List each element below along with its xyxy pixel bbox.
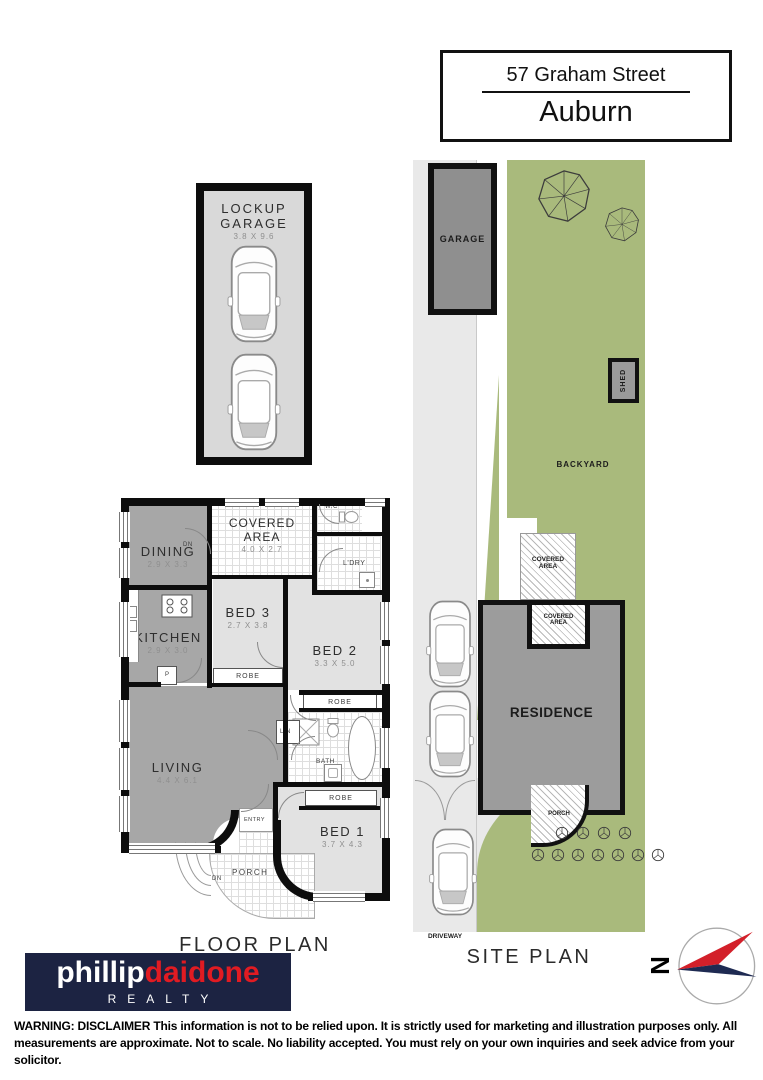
bath-sink	[324, 764, 342, 782]
brand-tagline: REALTY	[97, 992, 220, 1006]
wall	[207, 683, 288, 687]
wall	[382, 498, 390, 900]
driveway-label: DRIVEWAY	[413, 933, 477, 940]
window	[380, 646, 391, 684]
stove-icon	[161, 594, 193, 618]
entry-label: ENTRY	[244, 817, 265, 823]
toilet-icon	[339, 509, 359, 525]
room-bed2: BED 2 3.3 X 5.0	[288, 595, 382, 690]
window	[119, 512, 130, 542]
residence-covered-area: COVERED AREA	[527, 605, 590, 649]
compass: N	[648, 922, 760, 1010]
shrub-icon	[531, 848, 545, 862]
laundry-tub	[359, 572, 375, 588]
window	[365, 496, 385, 507]
address-suburb: Auburn	[539, 96, 633, 129]
site-garage: GARAGE	[428, 163, 497, 315]
porch-dn-label: DN	[212, 876, 222, 882]
lockup-garage-title: LOCKUP GARAGE	[212, 201, 296, 231]
wall	[283, 575, 288, 695]
robe-bed3: ROBE	[213, 668, 283, 684]
address-box: 57 Graham Street Auburn	[440, 50, 732, 142]
living-label: LIVING	[125, 760, 230, 775]
room-bed2-patch	[288, 579, 312, 595]
car-icon	[226, 351, 282, 453]
shrub-icon	[576, 826, 590, 840]
window	[129, 843, 215, 854]
window	[380, 798, 391, 838]
site-garage-label: GARAGE	[440, 234, 486, 244]
shrub-row	[555, 826, 632, 840]
window	[119, 700, 130, 742]
shrub-icon	[555, 826, 569, 840]
address-street: 57 Graham Street	[507, 64, 666, 87]
wall	[273, 782, 390, 787]
car-icon	[425, 598, 475, 690]
window	[119, 548, 130, 578]
bed2-dims: 3.3 X 5.0	[288, 659, 382, 668]
brand-first-name: phillip	[56, 956, 144, 989]
shrub-row	[531, 848, 665, 862]
shrub-icon	[618, 826, 632, 840]
site-covered-area-label: COVERED AREA	[528, 556, 568, 570]
bed2-label: BED 2	[288, 643, 382, 658]
bathtub	[348, 716, 376, 780]
tree-icon	[603, 206, 641, 244]
wall	[312, 590, 390, 595]
window	[380, 728, 391, 768]
wall	[299, 806, 390, 810]
toilet-icon	[325, 718, 341, 738]
residence: COVERED AREA RESIDENCE	[478, 600, 625, 815]
shrub-icon	[551, 848, 565, 862]
brand-name: phillipdaidone	[56, 958, 259, 988]
shrub-icon	[571, 848, 585, 862]
brand-last-name: daidone	[145, 956, 260, 989]
window	[313, 891, 365, 902]
shed: SHED	[608, 358, 639, 403]
lockup-garage-interior: LOCKUP GARAGE 3.8 X 9.6	[204, 191, 304, 457]
porch-upper	[239, 832, 273, 853]
shrub-icon	[631, 848, 645, 862]
window	[265, 496, 299, 507]
residence-covered-area-label: COVERED AREA	[538, 614, 579, 626]
covered-area-label: COVERED AREA	[217, 516, 307, 544]
wall	[121, 585, 212, 590]
site-plan: GARAGE SHED BACKYARD COVERED AREA COVERE…	[413, 160, 645, 942]
room-covered-area: COVERED AREA 4.0 X 2.7	[211, 502, 313, 575]
shrub-icon	[597, 826, 611, 840]
floor-plan: DINING 2.9 X 3.3 COVERED AREA 4.0 X 2.7 …	[113, 490, 397, 935]
pantry-label: P	[165, 672, 170, 678]
shrub-icon	[611, 848, 625, 862]
lockup-garage-dims: 3.8 X 9.6	[204, 232, 304, 241]
disclaimer-text: WARNING: DISCLAIMER This information is …	[14, 1018, 754, 1068]
wall	[312, 532, 390, 536]
linen-closet: LIN	[276, 720, 300, 744]
bed3-label: BED 3	[213, 605, 283, 620]
shed-label: SHED	[620, 368, 627, 393]
window	[119, 748, 130, 790]
address-divider	[482, 91, 690, 93]
porch-label: PORCH	[232, 868, 268, 877]
car-icon	[428, 826, 478, 918]
wall	[273, 782, 278, 834]
shrub-icon	[591, 848, 605, 862]
dining-dn-label: DN	[183, 542, 193, 548]
window	[119, 602, 130, 657]
dining-dims: 2.9 X 3.3	[125, 560, 211, 569]
window	[225, 496, 259, 507]
compass-icon	[670, 922, 760, 1010]
backyard-label: BACKYARD	[533, 460, 633, 469]
site-covered-area: COVERED AREA	[520, 533, 576, 600]
brand-logo: phillipdaidone REALTY	[25, 953, 291, 1011]
wall	[312, 498, 317, 595]
lockup-garage-plan: LOCKUP GARAGE 3.8 X 9.6	[196, 183, 312, 465]
car-icon	[425, 688, 475, 780]
robe-bed1: ROBE	[305, 790, 377, 806]
car-icon	[226, 243, 282, 345]
bed3-dims: 2.7 X 3.8	[213, 621, 283, 630]
wall	[121, 682, 161, 687]
window	[119, 796, 130, 832]
site-plan-caption: SITE PLAN	[413, 946, 645, 969]
lockup-garage-label: LOCKUP GARAGE 3.8 X 9.6	[204, 201, 304, 241]
wall	[283, 688, 288, 786]
window	[380, 602, 391, 640]
covered-area-dims: 4.0 X 2.7	[217, 545, 307, 554]
site-porch-label: PORCH	[539, 811, 579, 817]
wall	[207, 575, 317, 579]
tree-icon	[535, 168, 593, 226]
wall	[207, 585, 212, 688]
shrub-icon	[651, 848, 665, 862]
page: 57 Graham Street Auburn LOCKUP GARAGE 3.…	[0, 0, 763, 1080]
residence-label: RESIDENCE	[483, 705, 620, 720]
living-dims: 4.4 X 6.1	[125, 776, 230, 785]
laundry-label: L'DRY	[343, 560, 365, 567]
